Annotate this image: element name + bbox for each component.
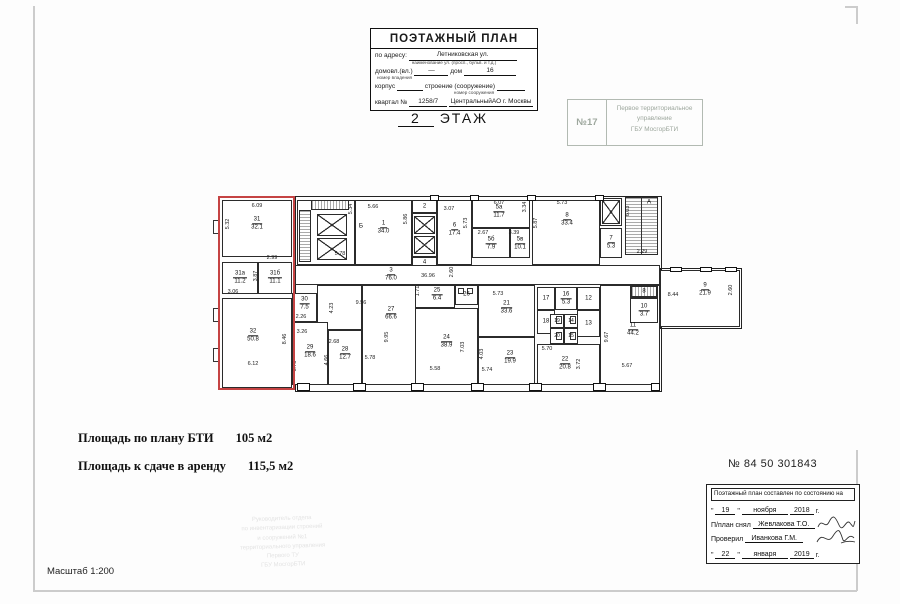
room-27 (362, 285, 420, 385)
dimension-label: 3.72 (576, 359, 582, 370)
rented-area-highlight (218, 196, 295, 390)
homestead-label: домовл.(вл.) (375, 68, 413, 75)
wall-pier (470, 195, 479, 201)
wall-pier (430, 195, 439, 201)
date1-day: 19 (715, 507, 735, 515)
room-label-8: 833.4 (561, 212, 573, 227)
structure-label: строение (сооружение) (425, 83, 495, 90)
staircase-hatch (311, 200, 349, 210)
dimension-label: 7.03 (460, 342, 466, 353)
dimension-label: 5.78 (365, 355, 376, 361)
floor-number: 2 (398, 110, 434, 127)
dimension-label: 5.86 (403, 214, 409, 225)
wall-pier (593, 383, 606, 391)
room-label-21: 2133.6 (501, 300, 513, 315)
dimension-label: 5.73 (557, 200, 568, 206)
elevator-shaft (602, 200, 620, 224)
bti-stamp-text: Первое территориальное управление ГБУ Мо… (607, 100, 702, 145)
room-3 (295, 265, 660, 285)
scale-label: Масштаб 1:200 (47, 566, 114, 577)
elevator-shaft (414, 236, 435, 254)
approval-stamp: Поэтажный план составлен по состоянию на… (706, 484, 860, 564)
room-label-1: 134.0 (378, 220, 390, 235)
staircase-letter-Б: Б (359, 223, 363, 230)
dimension-label: 4.23 (329, 303, 335, 314)
page-edge-bottom (33, 590, 857, 592)
house-value: 16 (464, 67, 516, 76)
wall-pier (353, 383, 366, 391)
area-rent-line: Площадь к сдаче в аренду115,5 м2 (78, 459, 293, 474)
dimension-label: 2.26 (296, 314, 307, 320)
room-label-28: 2812.7 (339, 346, 351, 361)
dimension-label: 5.34 (348, 204, 354, 215)
wall-pier (595, 195, 604, 201)
dimension-label: 3.26 (297, 329, 308, 335)
bti-territorial-stamp: №17 Первое территориальное управление ГБ… (567, 99, 703, 146)
wall-pier (471, 383, 484, 391)
dimension-label: 2.68 (329, 339, 340, 345)
room-label-5в: 5в10.1 (514, 236, 526, 251)
approval-date2: " 22 " января 2019 г. (711, 551, 855, 559)
room-label-9: 921.9 (699, 282, 711, 297)
checker-name: Иванкова Г.М. (745, 535, 803, 543)
building-label: корпус (375, 83, 395, 90)
dimension-label: 5.78 (335, 251, 346, 257)
checker-signature-scribble (813, 528, 857, 548)
room-label-20: 20 (554, 333, 560, 339)
date2-day: 22 (715, 551, 735, 559)
elevator-shaft (317, 214, 347, 236)
dimension-label: 8.44 (668, 292, 679, 298)
wall-pier (700, 267, 712, 272)
room-label-16: 165.3 (561, 291, 572, 306)
wall-pier (297, 383, 310, 391)
room-label-11: 1144.2 (627, 322, 639, 337)
surveyor-name: Жевлакова Т.О. (753, 521, 815, 529)
room-label-22: 2220.8 (559, 356, 571, 371)
date2-year: 2019 (790, 551, 814, 559)
elevator-shaft (414, 216, 435, 234)
homestead-value: — (414, 67, 448, 76)
address-label: по адресу: (375, 52, 407, 59)
room-8 (532, 200, 600, 265)
floor-title: 2 ЭТАЖ (398, 110, 488, 127)
approval-checker: Проверил Иванкова Г.М. (711, 535, 855, 543)
dimension-label: 2.60 (449, 267, 455, 278)
date2-month: января (742, 551, 788, 559)
dimension-label: 9.67 (604, 332, 610, 343)
wall-pier (651, 383, 660, 391)
room-label-10: 103.7 (639, 303, 650, 318)
wall-pier (411, 383, 424, 391)
room-label-30: 307.5 (299, 296, 310, 311)
wall-pier (527, 195, 536, 201)
room-label-17: 17 (543, 295, 550, 302)
floor-label: ЭТАЖ (440, 110, 488, 126)
quarter-value: 1258/7 (409, 98, 447, 107)
room-label-13: 13 (585, 320, 592, 327)
wall-pier (529, 383, 542, 391)
dimension-label: 5.87 (533, 218, 539, 229)
wall-pier (670, 267, 682, 272)
dimension-label: 5.66 (368, 204, 379, 210)
room-label-19: 19 (554, 318, 560, 324)
room-label-5б: 5б7.9 (486, 236, 497, 251)
area-bti-line: Площадь по плану БТИ105 м2 (78, 431, 272, 446)
dimension-label: 1.71 (415, 286, 421, 297)
dimension-label: 3.39 (509, 230, 520, 236)
room-label-2: 2 (423, 203, 426, 210)
dimension-label: 2.60 (728, 285, 734, 296)
stair-divider (641, 197, 642, 255)
plan-title: ПОЭТАЖНЫЙ ПЛАН (371, 29, 537, 49)
dimension-label: 3.07 (444, 206, 455, 212)
dimension-label: 6.03 (625, 206, 631, 217)
dimension-label: 2.67 (478, 230, 489, 236)
date1-year: 2018 (790, 507, 814, 515)
dimension-label: 4.66 (324, 355, 330, 366)
dimension-label: 9.56 (356, 300, 367, 306)
room-label-18: 18 (543, 318, 550, 325)
dimension-label: 3.34 (522, 202, 528, 213)
date1-month: ноября (742, 507, 788, 515)
dimension-label: 5.74 (482, 367, 493, 373)
page-edge-corner2 (856, 6, 858, 24)
bti-stamp-number: №17 (568, 100, 607, 145)
dimension-label: 4.03 (479, 349, 485, 360)
dimension-label: 36.96 (421, 273, 435, 279)
staircase-letter-А: А (647, 199, 651, 206)
room-label-25: 256.4 (432, 287, 443, 302)
dimension-label: 5.73 (463, 218, 469, 229)
dimension-label: 5.67 (622, 363, 633, 369)
room-label-26: 26 (463, 291, 470, 298)
room-label-4: 4 (423, 259, 426, 266)
room-label-3: 376.0 (385, 267, 397, 282)
floor-plan-drawing: 3132.131а11.231б11.13250.8134.024617.45а… (215, 192, 747, 398)
dimension-label: 5.70 (542, 346, 553, 352)
staircase-hatch (299, 210, 311, 262)
faint-stamp: Руководитель отдела по инвентаризации ст… (219, 513, 346, 573)
room-label-12: 12 (585, 295, 592, 302)
dimension-label: 5.58 (430, 366, 441, 372)
dimension-label: 2.29 (637, 249, 648, 255)
room-label-23: 2319.9 (504, 350, 516, 365)
house-label: дом (450, 68, 462, 75)
district-value: ЦентральныйАО г. Москвы (449, 98, 533, 107)
room-label-14: 14 (568, 318, 574, 324)
room-label-7: 75.3 (607, 235, 615, 250)
room-label-29: 2918.6 (304, 344, 316, 359)
dimension-label: 5.73 (493, 291, 504, 297)
room-label-5а: 5а11.7 (493, 204, 504, 219)
quarter-label: квартал № (375, 99, 407, 106)
room-label-6: 617.4 (449, 222, 461, 237)
room-label-15: 15 (568, 333, 574, 339)
wall-pier (725, 267, 737, 272)
room-label-24: 2438.9 (441, 334, 453, 349)
dimension-label: 6.07 (494, 200, 505, 206)
room-label-27: 2766.6 (385, 306, 397, 321)
approval-title: Поэтажный план составлен по состоянию на (711, 488, 855, 501)
page-edge-left (33, 6, 35, 592)
room-9 (660, 270, 740, 327)
header-stamp: ПОЭТАЖНЫЙ ПЛАН по адресу: Летниковская у… (370, 28, 538, 111)
room-label-8: 8 (642, 288, 645, 295)
dimension-label: 9.95 (384, 332, 390, 343)
doc-number: № 84 50 301843 (728, 458, 817, 470)
